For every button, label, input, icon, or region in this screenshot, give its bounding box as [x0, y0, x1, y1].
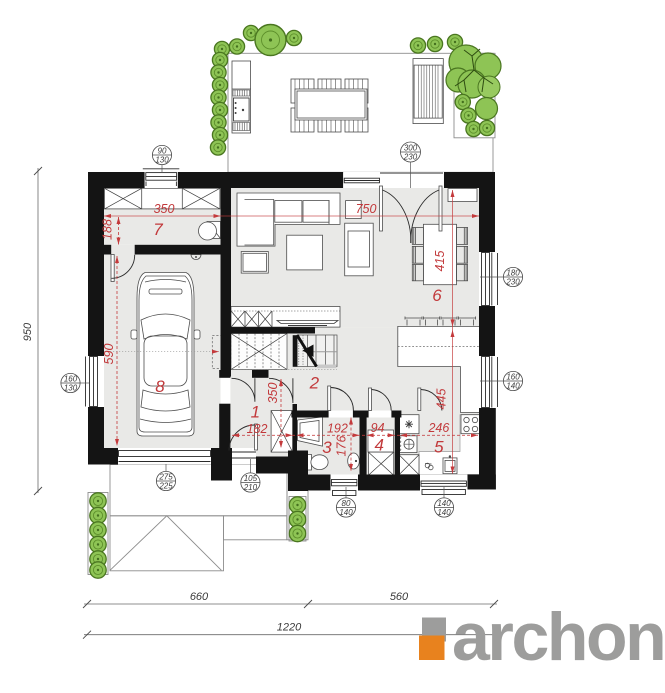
- svg-text:176: 176: [335, 436, 349, 457]
- svg-text:140: 140: [339, 508, 353, 517]
- svg-text:230: 230: [403, 153, 418, 162]
- svg-text:275: 275: [158, 472, 173, 481]
- svg-text:182: 182: [247, 422, 268, 436]
- svg-text:660: 660: [190, 591, 209, 603]
- svg-text:560: 560: [390, 591, 409, 603]
- svg-text:445: 445: [435, 389, 449, 410]
- svg-text:140: 140: [437, 508, 451, 517]
- svg-text:590: 590: [102, 344, 116, 365]
- svg-text:2: 2: [309, 374, 320, 393]
- svg-text:188: 188: [101, 219, 115, 240]
- svg-text:130: 130: [64, 384, 78, 393]
- svg-text:6: 6: [432, 286, 442, 305]
- svg-text:210: 210: [243, 483, 258, 492]
- svg-text:105: 105: [244, 474, 258, 483]
- svg-text:5: 5: [434, 438, 444, 457]
- svg-text:350: 350: [266, 383, 280, 404]
- svg-text:246: 246: [427, 421, 449, 435]
- svg-text:8: 8: [155, 377, 165, 396]
- svg-text:3: 3: [322, 438, 332, 457]
- svg-text:230: 230: [505, 278, 520, 287]
- svg-text:4: 4: [374, 436, 383, 455]
- svg-text:180: 180: [506, 268, 520, 277]
- svg-text:130: 130: [155, 156, 169, 165]
- svg-text:90: 90: [158, 146, 167, 155]
- svg-text:7: 7: [153, 220, 163, 239]
- svg-text:350: 350: [154, 202, 175, 216]
- svg-text:140: 140: [506, 382, 520, 391]
- svg-text:300: 300: [404, 143, 418, 152]
- svg-text:1220: 1220: [277, 622, 302, 634]
- svg-text:160: 160: [64, 374, 78, 383]
- svg-text:415: 415: [433, 251, 447, 272]
- svg-text:750: 750: [356, 202, 377, 216]
- svg-text:1: 1: [251, 403, 260, 422]
- svg-text:140: 140: [437, 499, 451, 508]
- svg-text:80: 80: [342, 499, 351, 508]
- svg-text:950: 950: [22, 322, 34, 341]
- svg-text:225: 225: [158, 482, 173, 491]
- svg-text:192: 192: [327, 421, 348, 435]
- svg-text:160: 160: [506, 372, 520, 381]
- svg-text:94: 94: [371, 421, 385, 435]
- svg-text:archon: archon: [452, 599, 664, 675]
